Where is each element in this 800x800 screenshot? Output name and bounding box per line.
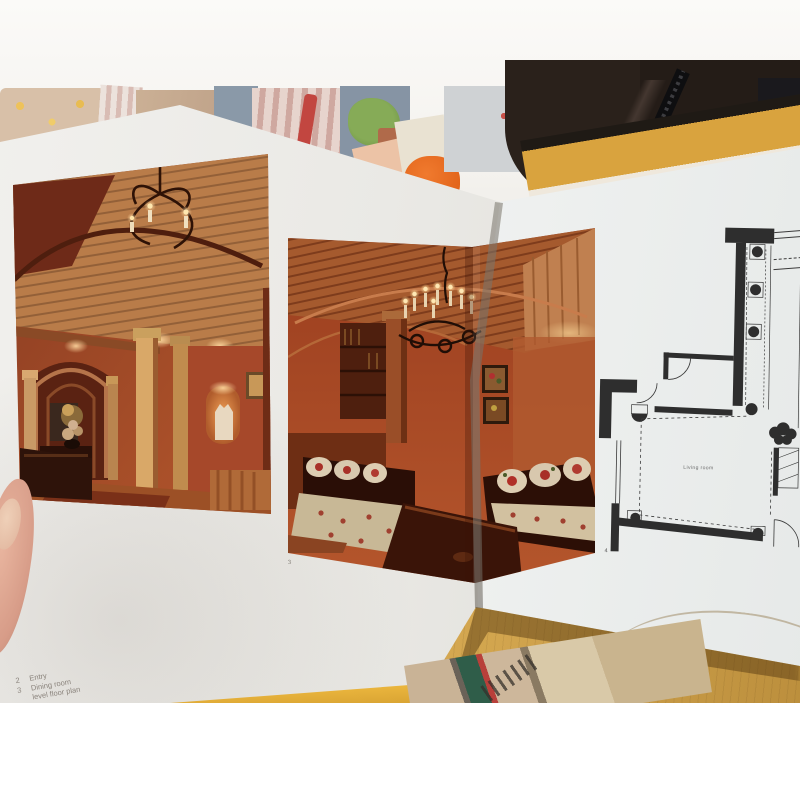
plan-vault-dashed xyxy=(639,414,772,530)
plan-page-mark: 4 xyxy=(605,548,608,554)
photo2-number: 3 xyxy=(288,560,292,566)
photo1-white-sculpture xyxy=(215,404,233,440)
bottom-white-band xyxy=(0,703,800,800)
photo-of-open-interior-design-book: Living room 4 3 2 Entry 3 Dining room le… xyxy=(0,0,800,800)
plan-wall-top xyxy=(725,228,774,244)
photo-dining-room xyxy=(285,205,597,590)
plan-wall-bottom xyxy=(617,517,763,541)
photo2-framed-picture-top xyxy=(485,368,505,390)
photo-entry xyxy=(10,148,272,520)
plan-columns xyxy=(744,244,765,415)
floor-plan: Living room 4 xyxy=(596,218,800,570)
photo1-framed-art xyxy=(249,375,264,396)
plan-door-arc xyxy=(668,357,690,379)
plan-room-label: Living room xyxy=(683,465,713,472)
photo2-framed-picture-bottom xyxy=(486,400,506,421)
plan-wall-spine xyxy=(733,243,746,406)
plan-bay xyxy=(767,422,800,547)
